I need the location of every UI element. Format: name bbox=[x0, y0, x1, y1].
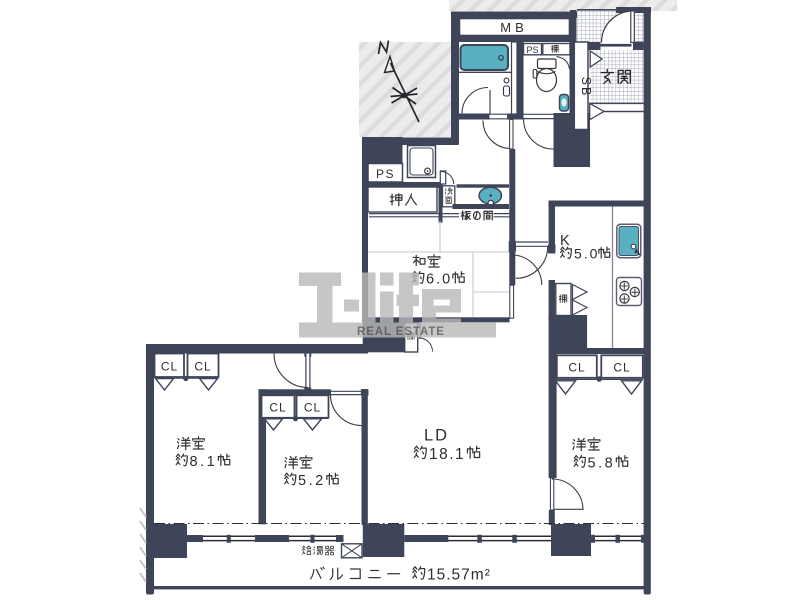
svg-text:5.2: 5.2 bbox=[298, 473, 326, 489]
svg-text:CL: CL bbox=[613, 361, 630, 375]
svg-text:REAL ESTATE: REAL ESTATE bbox=[357, 326, 445, 338]
svg-text:15.57m²: 15.57m² bbox=[427, 567, 491, 584]
svg-text:5.8: 5.8 bbox=[588, 456, 616, 472]
svg-text:18.1: 18.1 bbox=[429, 446, 465, 463]
svg-text:CL: CL bbox=[194, 360, 211, 374]
svg-text:CL: CL bbox=[304, 401, 321, 415]
svg-text:5.0: 5.0 bbox=[574, 246, 599, 262]
svg-text:LD: LD bbox=[424, 427, 449, 445]
svg-text:PS: PS bbox=[526, 45, 538, 55]
svg-text:SB: SB bbox=[579, 77, 593, 98]
svg-text:CL: CL bbox=[269, 401, 286, 415]
svg-text:K: K bbox=[560, 233, 570, 249]
svg-text:PS: PS bbox=[376, 167, 395, 181]
svg-text:6.0: 6.0 bbox=[426, 272, 452, 288]
svg-text:CL: CL bbox=[161, 360, 178, 374]
svg-text:CL: CL bbox=[568, 361, 585, 375]
svg-text:MB: MB bbox=[500, 20, 528, 35]
svg-text:8.1: 8.1 bbox=[190, 454, 218, 470]
